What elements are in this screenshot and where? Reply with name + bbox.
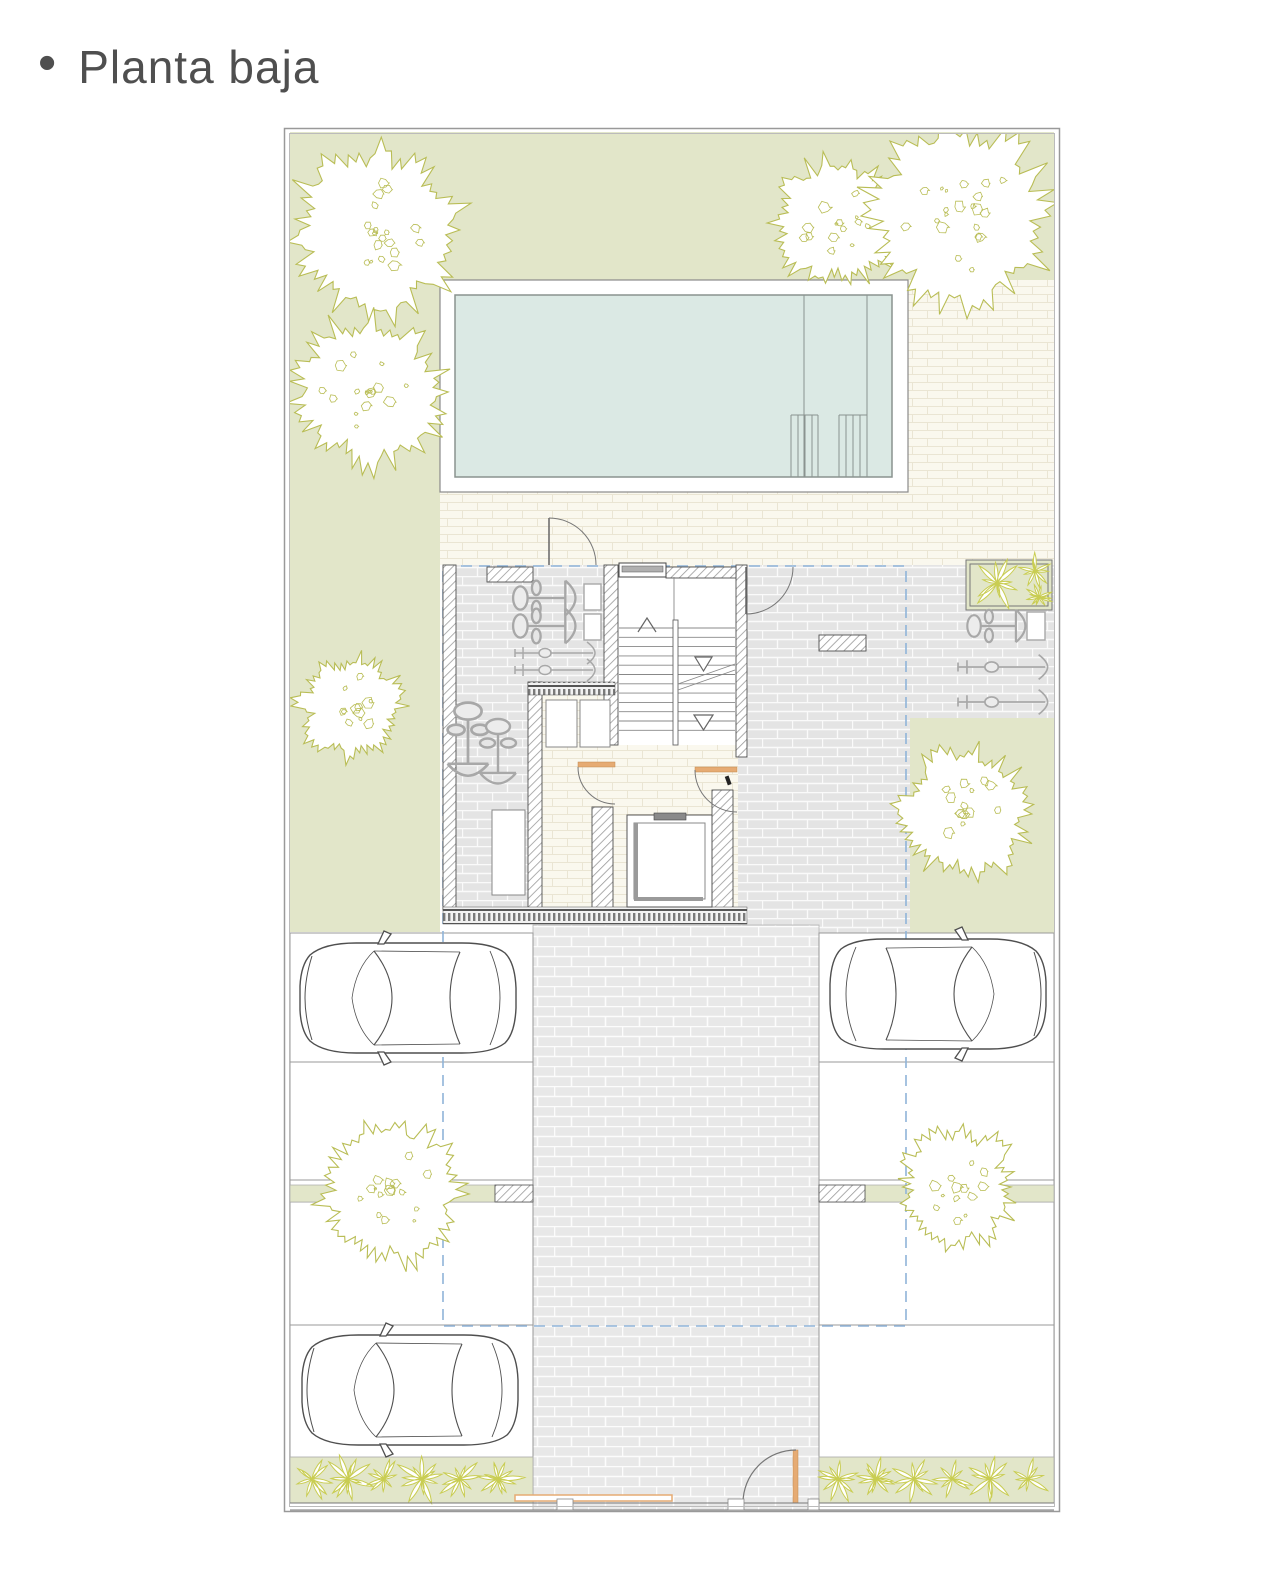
- strip-hatch-block-left: [495, 1185, 533, 1202]
- pool: [440, 280, 908, 492]
- car: [830, 927, 1046, 1061]
- gate-post: [808, 1499, 819, 1510]
- page-title: • Planta baja: [38, 40, 319, 94]
- wall-elevator-west: [592, 807, 613, 908]
- page: • Planta baja: [0, 0, 1280, 1580]
- wc-fixture: [580, 700, 610, 747]
- driveway: [533, 925, 819, 1510]
- sliding-vehicle-gate: [515, 1495, 672, 1501]
- wall-lintel: [487, 567, 533, 582]
- gate-post: [557, 1499, 573, 1510]
- strip-hatch-block-right: [819, 1185, 865, 1202]
- car: [302, 1323, 518, 1457]
- pool-water: [455, 295, 892, 477]
- wc-fixture: [546, 700, 577, 747]
- gate-post: [728, 1499, 744, 1510]
- elevator-door: [654, 813, 686, 820]
- terrace-right: [908, 280, 1054, 565]
- title-text: Planta baja: [78, 40, 319, 94]
- column-side-yard: [819, 635, 866, 651]
- wall-elevator-east: [712, 790, 733, 908]
- grating-strip-upper: [528, 682, 615, 695]
- floor-plan: [282, 126, 1062, 1514]
- title-bullet-icon: •: [38, 37, 56, 89]
- wall-stair-north: [666, 567, 736, 578]
- car: [300, 931, 516, 1065]
- stair-window: [619, 563, 666, 577]
- grating-strip-facade: [443, 907, 747, 924]
- floor-plan-drawing: [282, 126, 1062, 1514]
- wall-gym-west: [443, 565, 456, 910]
- elevator: [627, 813, 712, 907]
- gym-bench: [492, 810, 525, 895]
- wall-interior: [528, 682, 542, 910]
